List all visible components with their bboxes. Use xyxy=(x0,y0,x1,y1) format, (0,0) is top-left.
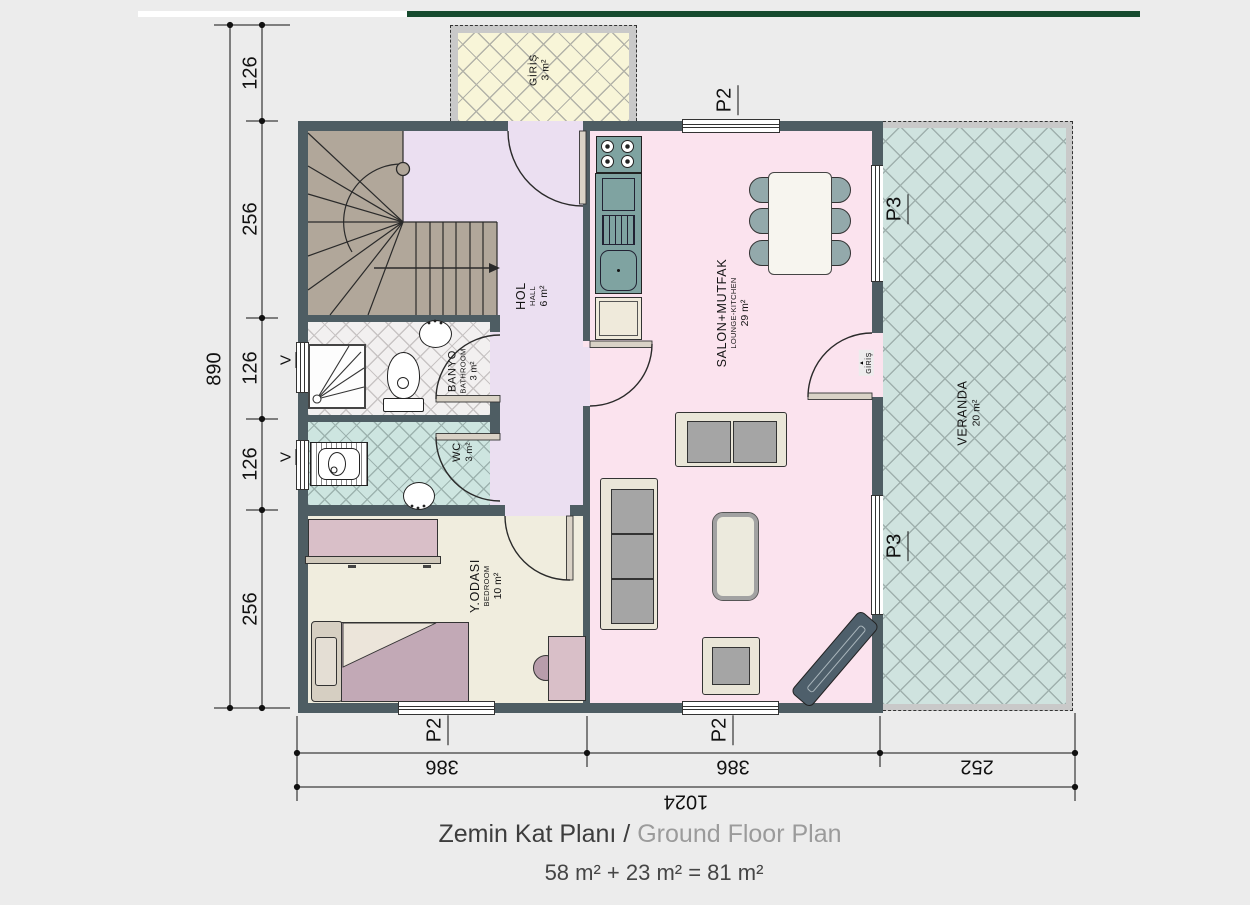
dim-bottom-3: 252 xyxy=(960,755,993,778)
dim-left-4: 126 xyxy=(240,447,263,480)
dimension-lines xyxy=(214,22,1078,801)
area-summary: 58 m² + 23 m² = 81 m² xyxy=(545,860,764,886)
room-name: Y.ODASI xyxy=(468,559,483,613)
dim-left-5: 256 xyxy=(240,592,263,625)
room-area: 20 m² xyxy=(970,380,982,445)
label-porch: GİRİŞ 3 m² xyxy=(528,54,553,86)
label-bedroom: Y.ODASI BEDROOM 10 m² xyxy=(468,559,504,613)
room-name: WC xyxy=(451,442,464,462)
room-name: GİRİŞ xyxy=(528,54,540,86)
label-salon: SALON+MUTFAK LOUNGE-KITCHEN 29 m² xyxy=(715,259,751,368)
dim-bottom-2: 386 xyxy=(716,755,749,778)
bed-fold xyxy=(343,623,436,667)
tag-v-wc: V xyxy=(278,449,297,465)
dim-left-total: 890 xyxy=(204,352,227,385)
room-subname: BATHROOM xyxy=(459,348,468,393)
room-area: 6 m² xyxy=(538,282,550,310)
room-subname: HALL xyxy=(529,282,538,310)
tag-p2-bottom-1: P2 xyxy=(424,715,449,745)
entry-text: GİRİŞ xyxy=(865,352,872,374)
label-hall: HOL HALL 6 m² xyxy=(514,282,550,310)
plan-title-turkish: Zemin Kat Planı / xyxy=(438,820,630,848)
label-wc: WC 3 m² xyxy=(451,442,475,462)
room-area: 29 m² xyxy=(739,259,751,368)
room-subname: LOUNGE-KITCHEN xyxy=(730,259,739,368)
door-leaves xyxy=(436,131,872,580)
room-name: HOL xyxy=(514,282,529,310)
room-area: 3 m² xyxy=(468,348,479,393)
dim-bottom-total: 1024 xyxy=(664,790,709,813)
plan-title-english: Ground Floor Plan xyxy=(637,820,841,848)
label-entry-door: ▲ GİRİŞ xyxy=(859,350,874,376)
room-area: 3 m² xyxy=(464,442,475,462)
dim-left-2: 256 xyxy=(240,202,263,235)
floor-plan-page: GİRİŞ 3 m² HOL HALL 6 m² SALON+MUTFAK LO… xyxy=(0,0,1250,905)
dim-bottom-1: 386 xyxy=(425,755,458,778)
dim-left-1: 126 xyxy=(240,56,263,89)
label-veranda: VERANDA 20 m² xyxy=(955,380,982,445)
stair-detail xyxy=(308,131,500,315)
tag-p3-bottom: P3 xyxy=(884,531,909,561)
room-area: 10 m² xyxy=(492,559,504,613)
tag-p2-top: P2 xyxy=(714,85,739,115)
room-area: 3 m² xyxy=(540,54,552,86)
room-subname: BEDROOM xyxy=(483,559,492,613)
dim-left-3: 126 xyxy=(240,351,263,384)
plan-title: Zemin Kat Planı /Ground Floor Plan xyxy=(438,820,841,849)
label-bathroom: BANYO BATHROOM 3 m² xyxy=(446,348,479,393)
plan-linework xyxy=(0,0,1250,905)
tag-p2-bottom-2: P2 xyxy=(709,715,734,745)
shower-spray xyxy=(313,346,364,403)
tag-p3-top: P3 xyxy=(884,194,909,224)
room-name: SALON+MUTFAK xyxy=(715,259,730,368)
tag-v-bathroom: V xyxy=(278,352,297,368)
door-arcs xyxy=(436,131,872,580)
room-name: VERANDA xyxy=(955,380,970,445)
